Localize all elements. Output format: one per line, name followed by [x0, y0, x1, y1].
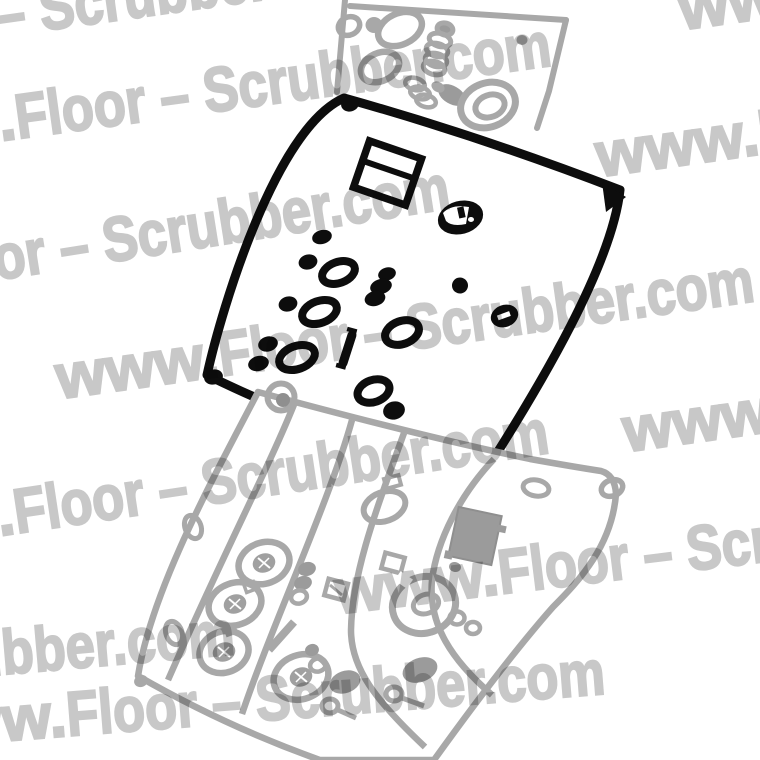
svg-text:www.: www.: [590, 99, 760, 191]
svg-text:www.: www.: [50, 321, 223, 413]
svg-text:www.: www.: [617, 374, 760, 466]
svg-text:www.: www.: [0, 680, 69, 760]
svg-text:www.: www.: [673, 0, 760, 44]
